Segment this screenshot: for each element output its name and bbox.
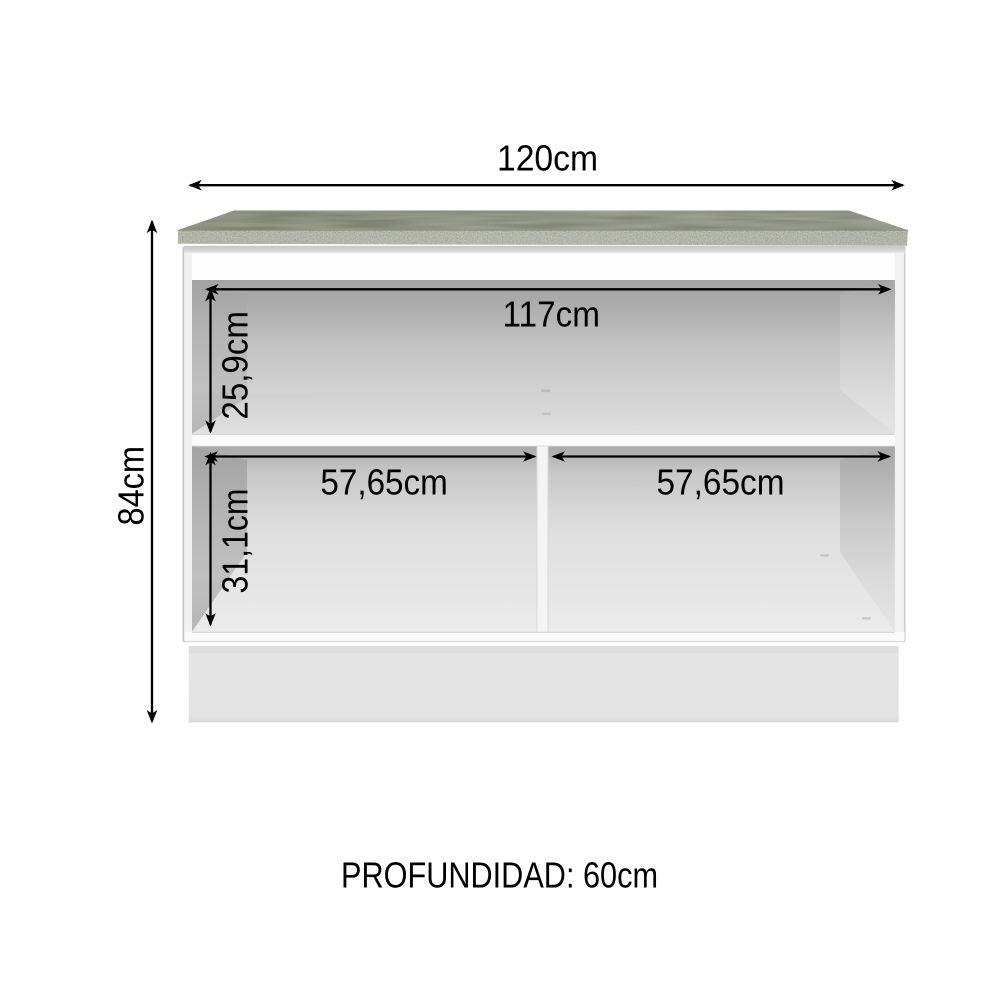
svg-text:31,1cm: 31,1cm (215, 489, 256, 594)
svg-text:25,9cm: 25,9cm (215, 311, 256, 420)
svg-text:117cm: 117cm (503, 294, 601, 335)
svg-text:120cm: 120cm (497, 138, 598, 179)
svg-text:PROFUNDIDAD: 60cm: PROFUNDIDAD: 60cm (341, 855, 658, 896)
svg-text:57,65cm: 57,65cm (657, 462, 785, 503)
svg-text:84cm: 84cm (111, 446, 152, 526)
svg-text:57,65cm: 57,65cm (320, 462, 447, 503)
